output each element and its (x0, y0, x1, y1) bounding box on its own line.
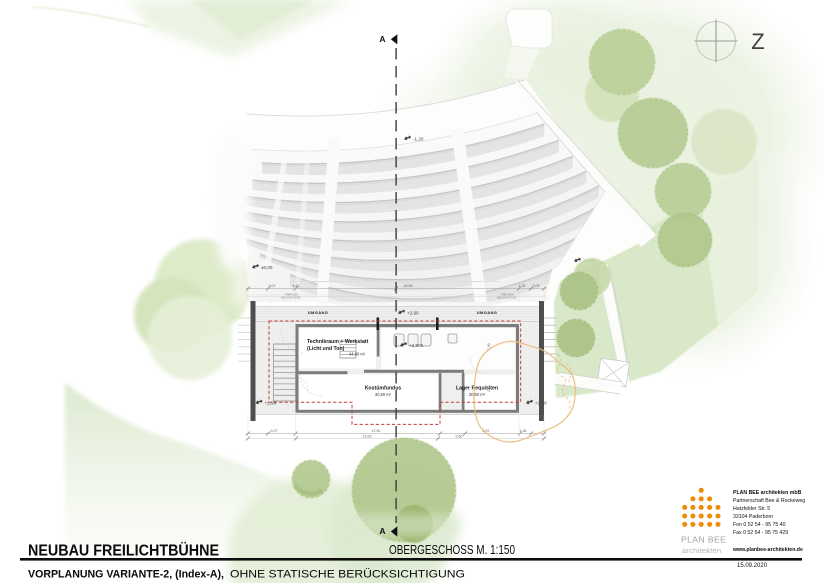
svg-text:2,42: 2,42 (487, 385, 491, 392)
svg-text:OHNE STATISCHE BERÜCKSICHTIGUN: OHNE STATISCHE BERÜCKSICHTIGUNG (230, 569, 465, 581)
svg-text:A: A (379, 526, 385, 536)
svg-text:3,07: 3,07 (271, 429, 278, 433)
svg-text:4,31: 4,31 (293, 284, 300, 288)
svg-text:Technikraum + Werkstatt: Technikraum + Werkstatt (307, 339, 369, 345)
svg-text:12,50: 12,50 (372, 429, 381, 433)
svg-text:Fax 0 52 54 - 95 75 429: Fax 0 52 54 - 95 75 429 (733, 530, 788, 536)
svg-text:44,00 m²: 44,00 m² (349, 352, 366, 357)
svg-text:UMGANG: UMGANG (477, 310, 498, 315)
svg-text:±0,00: ±0,00 (261, 265, 273, 270)
svg-text:OBERGESCHOSS M. 1:150: OBERGESCHOSS M. 1:150 (389, 543, 515, 557)
svg-text:1,36: 1,36 (519, 284, 526, 288)
svg-text:5,60: 5,60 (456, 434, 463, 438)
svg-text:Z: Z (751, 29, 764, 54)
svg-text:A: A (379, 34, 385, 44)
svg-text:PLAN BEE: PLAN BEE (681, 535, 726, 545)
svg-text:+2,96: +2,96 (535, 401, 547, 406)
svg-text:BELEUCHTUNG: BELEUCHTUNG (281, 296, 301, 300)
svg-text:3,07: 3,07 (269, 284, 276, 288)
svg-text:+2,96: +2,96 (407, 311, 419, 316)
svg-text:Hatzfelder Str. 5: Hatzfelder Str. 5 (733, 506, 770, 512)
svg-text:15.09.2020: 15.09.2020 (737, 563, 768, 569)
svg-text:Partnerschaft Bee & Rockeweg: Partnerschaft Bee & Rockeweg (733, 498, 805, 504)
svg-text:16,06: 16,06 (404, 284, 413, 288)
svg-text:www.planbee-architekten.de: www.planbee-architekten.de (732, 547, 803, 553)
svg-text:33104 Paderborn: 33104 Paderborn (733, 514, 773, 520)
svg-text:Lager Requisiten: Lager Requisiten (456, 386, 498, 392)
svg-text:VORPLANUNG VARIANTE-2, (Index-: VORPLANUNG VARIANTE-2, (Index-A), (28, 569, 224, 581)
svg-text:30,50 m²: 30,50 m² (375, 392, 392, 397)
svg-text:UMGANG: UMGANG (308, 310, 329, 315)
svg-text:13,63: 13,63 (363, 434, 372, 438)
svg-text:BELEUCHTUNG: BELEUCHTUNG (497, 296, 517, 300)
svg-text:1,36: 1,36 (520, 429, 527, 433)
svg-text:+2,965: +2,965 (409, 343, 424, 348)
svg-text:+2,96: +2,96 (265, 401, 277, 406)
svg-text:-1,20: -1,20 (413, 137, 424, 142)
svg-text:NEUBAU FREILICHTBÜHNE: NEUBAU FREILICHTBÜHNE (28, 541, 219, 560)
svg-text:3,05: 3,05 (533, 284, 540, 288)
svg-text:30,50 m²: 30,50 m² (469, 392, 486, 397)
svg-text:(Licht und Ton): (Licht und Ton) (307, 346, 345, 352)
svg-text:architekten: architekten (682, 546, 721, 555)
svg-text:PLAN BEE architekten mbB: PLAN BEE architekten mbB (733, 490, 802, 496)
svg-text:Fon 0 52 54 - 95 75 40: Fon 0 52 54 - 95 75 40 (733, 522, 786, 528)
